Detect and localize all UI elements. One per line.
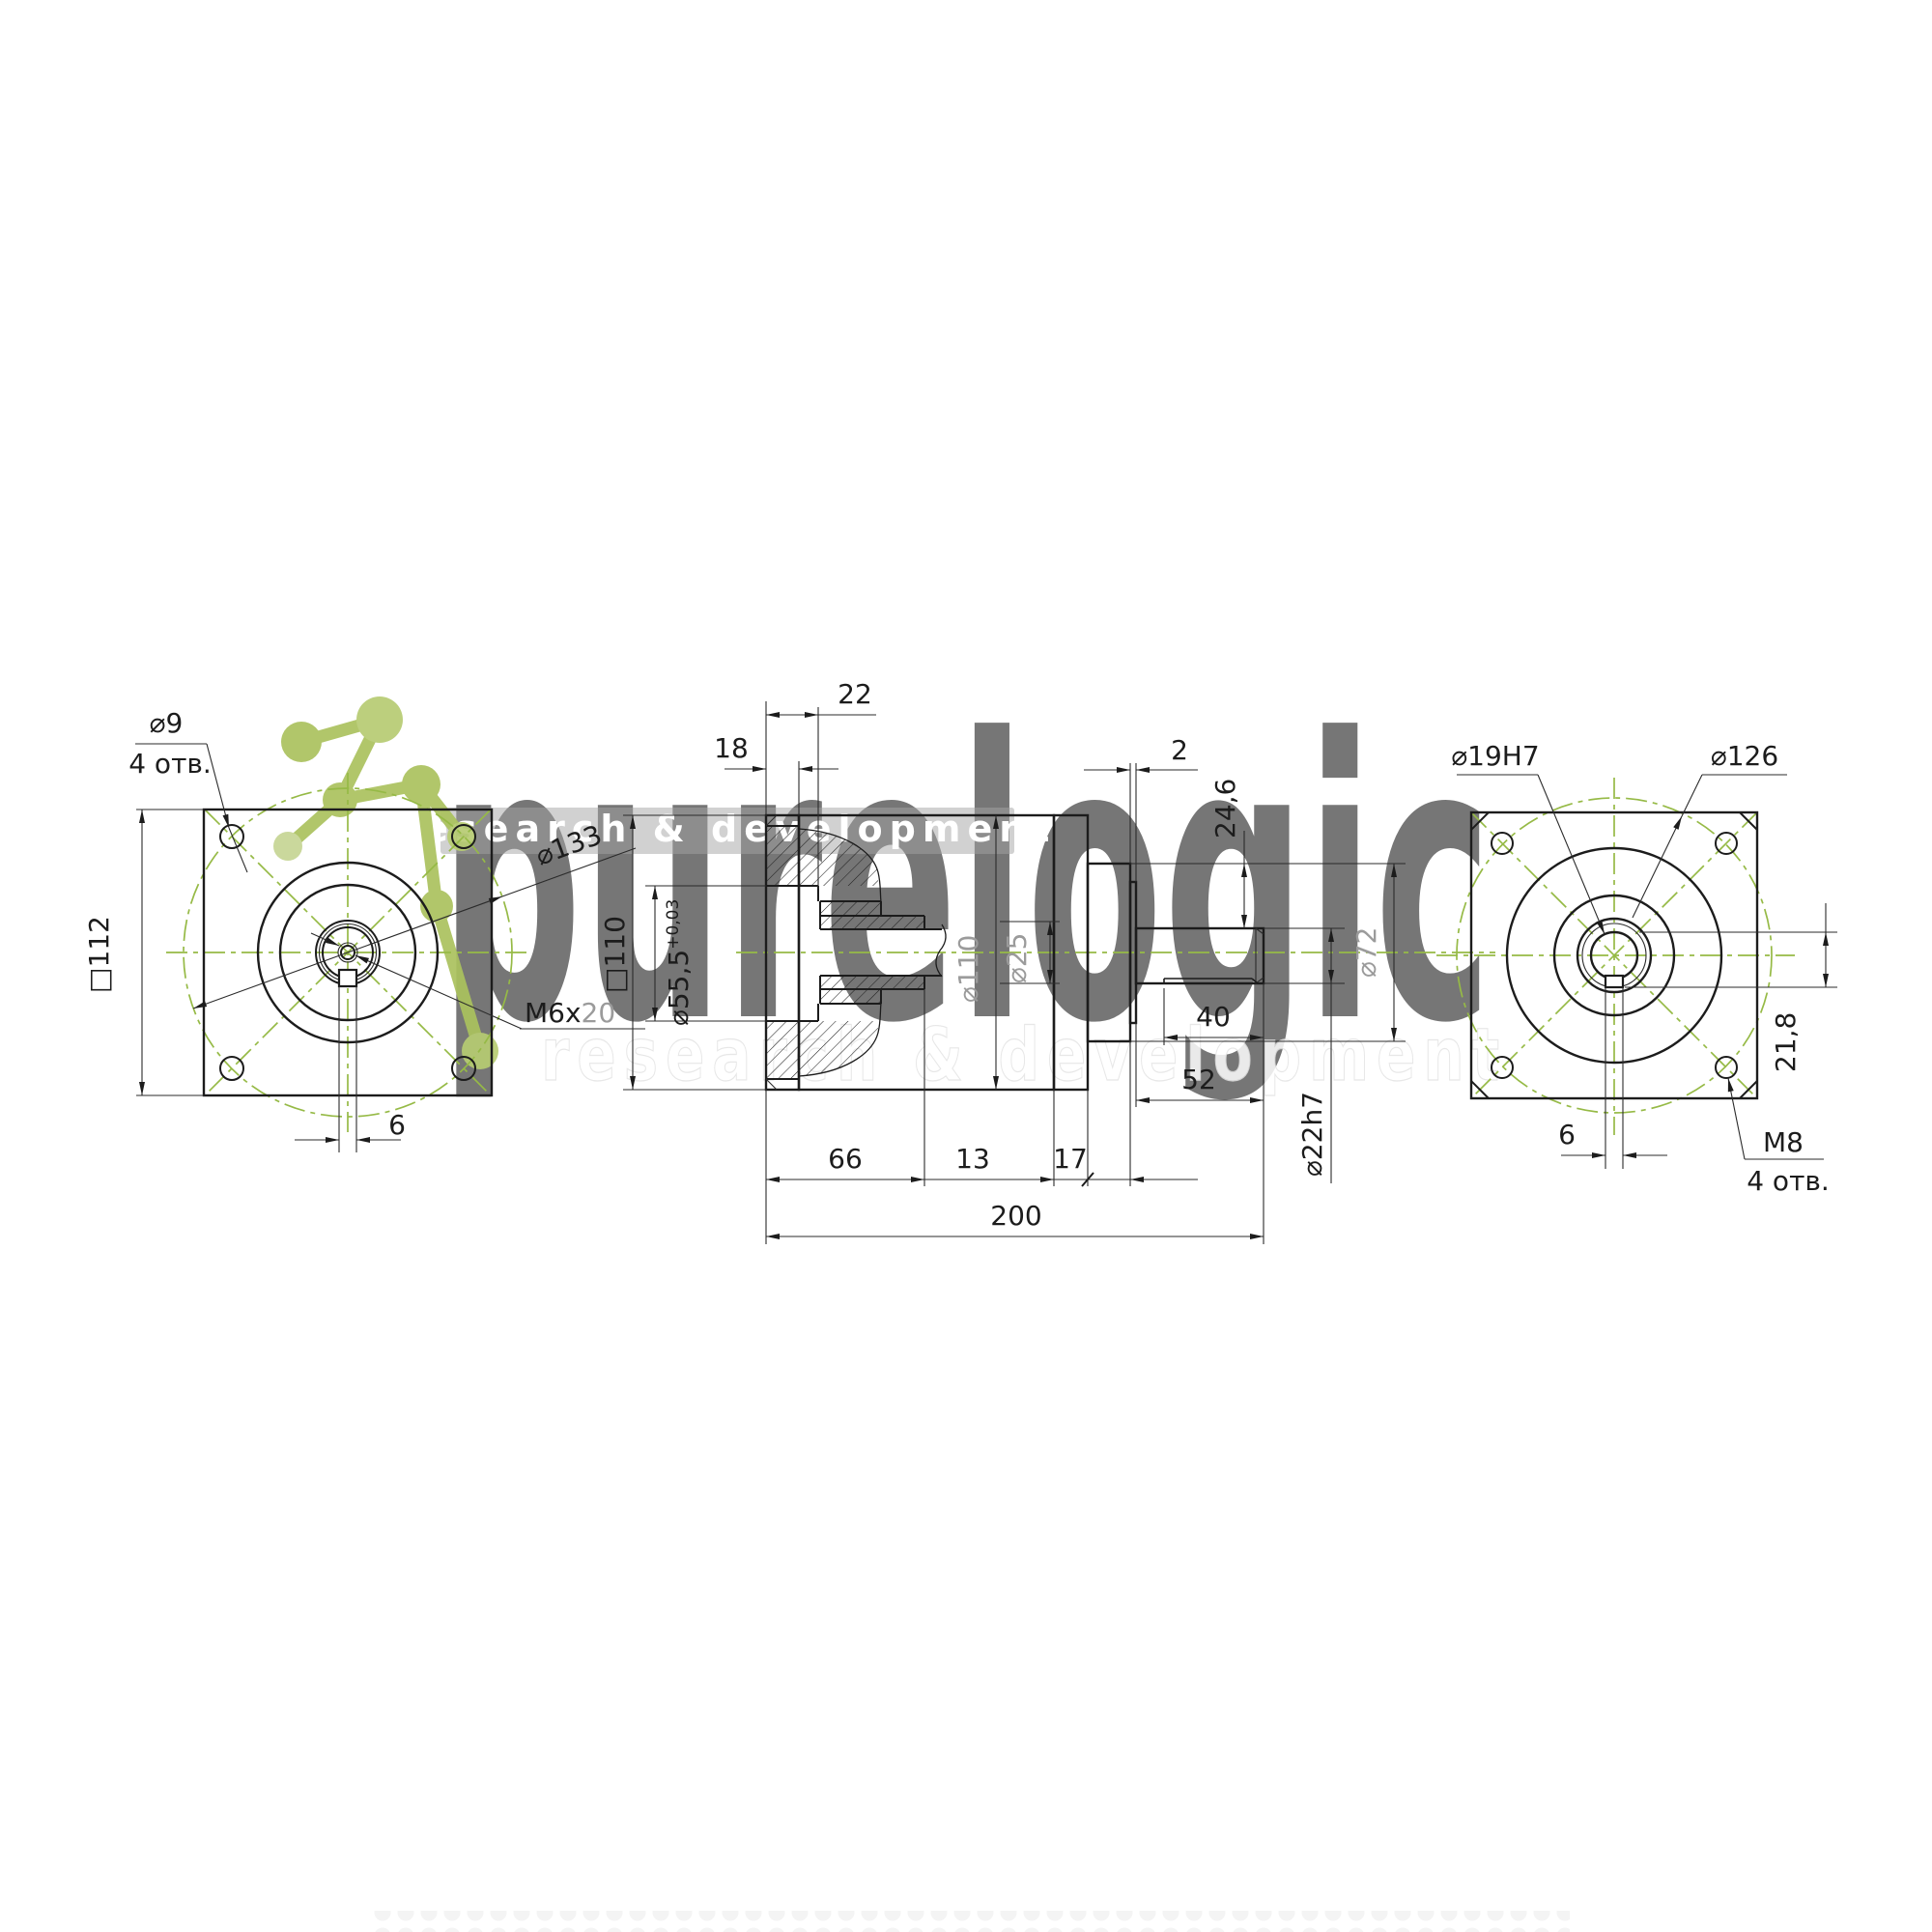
dim-shaft-22h7-label: ⌀22h7	[1296, 1092, 1328, 1177]
left-keyway	[339, 970, 356, 986]
technical-drawing-page: purelogic research & development researc…	[0, 0, 1932, 1932]
watermark-bottom-strip	[372, 1911, 1570, 1932]
dim-square-112: □112	[83, 916, 115, 993]
callout-thread: M6x20	[525, 997, 615, 1029]
dim-40-label: 40	[1196, 1001, 1231, 1033]
dim-24-6-label: 24,6	[1209, 779, 1241, 838]
dim-200-label: 200	[990, 1200, 1041, 1232]
dim-17-label: 17	[1053, 1143, 1088, 1175]
callout-thread-count: 4 отв.	[1747, 1165, 1830, 1197]
gearbox-drawing-svg: purelogic research & development researc…	[0, 0, 1932, 1932]
dim-body-110-label: ⌀110	[952, 935, 984, 1003]
dim-collar-72-label: ⌀72	[1350, 927, 1382, 979]
callout-hole-count: 4 отв.	[128, 748, 212, 780]
callout-thread-m8: M8	[1763, 1126, 1804, 1158]
dim-2: 2	[1171, 734, 1188, 766]
dim-bore-25-label: ⌀25	[1001, 933, 1033, 984]
dim-22: 22	[838, 678, 872, 710]
dim-square-110-label: □110	[599, 916, 631, 993]
callout-bore-19h7: ⌀19H7	[1451, 740, 1539, 772]
dim-13-label: 13	[955, 1143, 990, 1175]
watermark-tagline-small: research & development	[399, 808, 1057, 850]
dim-52-label: 52	[1181, 1064, 1216, 1095]
dim-right-keyway-6: 6	[1558, 1119, 1576, 1151]
callout-hole-dia: ⌀9	[150, 707, 184, 739]
right-keyway	[1605, 976, 1623, 987]
callout-bcd-126: ⌀126	[1711, 740, 1778, 772]
dim-keyway-6: 6	[388, 1109, 406, 1141]
dim-66-label: 66	[828, 1143, 863, 1175]
dim-18: 18	[714, 732, 749, 764]
dim-21-8-label: 21,8	[1770, 1012, 1802, 1072]
